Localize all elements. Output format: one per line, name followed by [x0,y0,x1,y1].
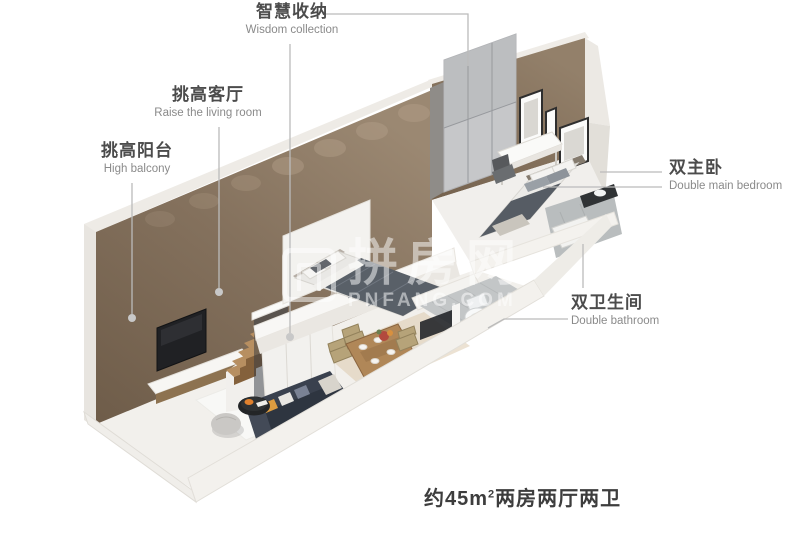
label-bathroom-zh: 双卫生间 [571,293,659,313]
label-storage: 智慧收纳 Wisdom collection [227,2,357,36]
label-storage-zh: 智慧收纳 [227,2,357,22]
label-living-room-zh: 挑高客厅 [143,85,273,105]
floorplan-infographic: 拼房网 PNFANG.COM 智慧收纳 Wisdom collection 挑高… [0,0,800,534]
leader-dot [215,288,223,296]
label-storage-en: Wisdom collection [227,24,357,36]
area-caption-suffix: 两房两厅两卫 [495,488,621,510]
label-balcony: 挑高阳台 High balcony [72,141,202,175]
label-balcony-zh: 挑高阳台 [72,141,202,161]
label-main-bedroom: 双主卧 Double main bedroom [669,158,782,192]
vanity-sink [594,190,606,197]
label-living-room-en: Raise the living room [143,107,273,119]
label-living-room: 挑高客厅 Raise the living room [143,85,273,119]
wing-right-edge [585,38,610,126]
wall-left-edge [84,224,96,428]
label-balcony-en: High balcony [72,163,202,175]
label-main-bedroom-en: Double main bedroom [669,180,782,192]
leader-dot [286,333,294,341]
area-caption-prefix: 约45m [424,488,488,510]
label-bathroom-en: Double bathroom [571,315,659,327]
label-bathroom: 双卫生间 Double bathroom [571,293,659,327]
orange-bowl [245,399,254,405]
wardrobe-side [430,82,444,200]
bean-bag [211,413,241,435]
floorplan-3d-render [0,0,800,534]
leader-dot [128,314,136,322]
coffee-table [238,397,270,416]
area-caption: 约45m2两房两厅两卫 [424,482,621,511]
label-main-bedroom-zh: 双主卧 [669,158,782,178]
